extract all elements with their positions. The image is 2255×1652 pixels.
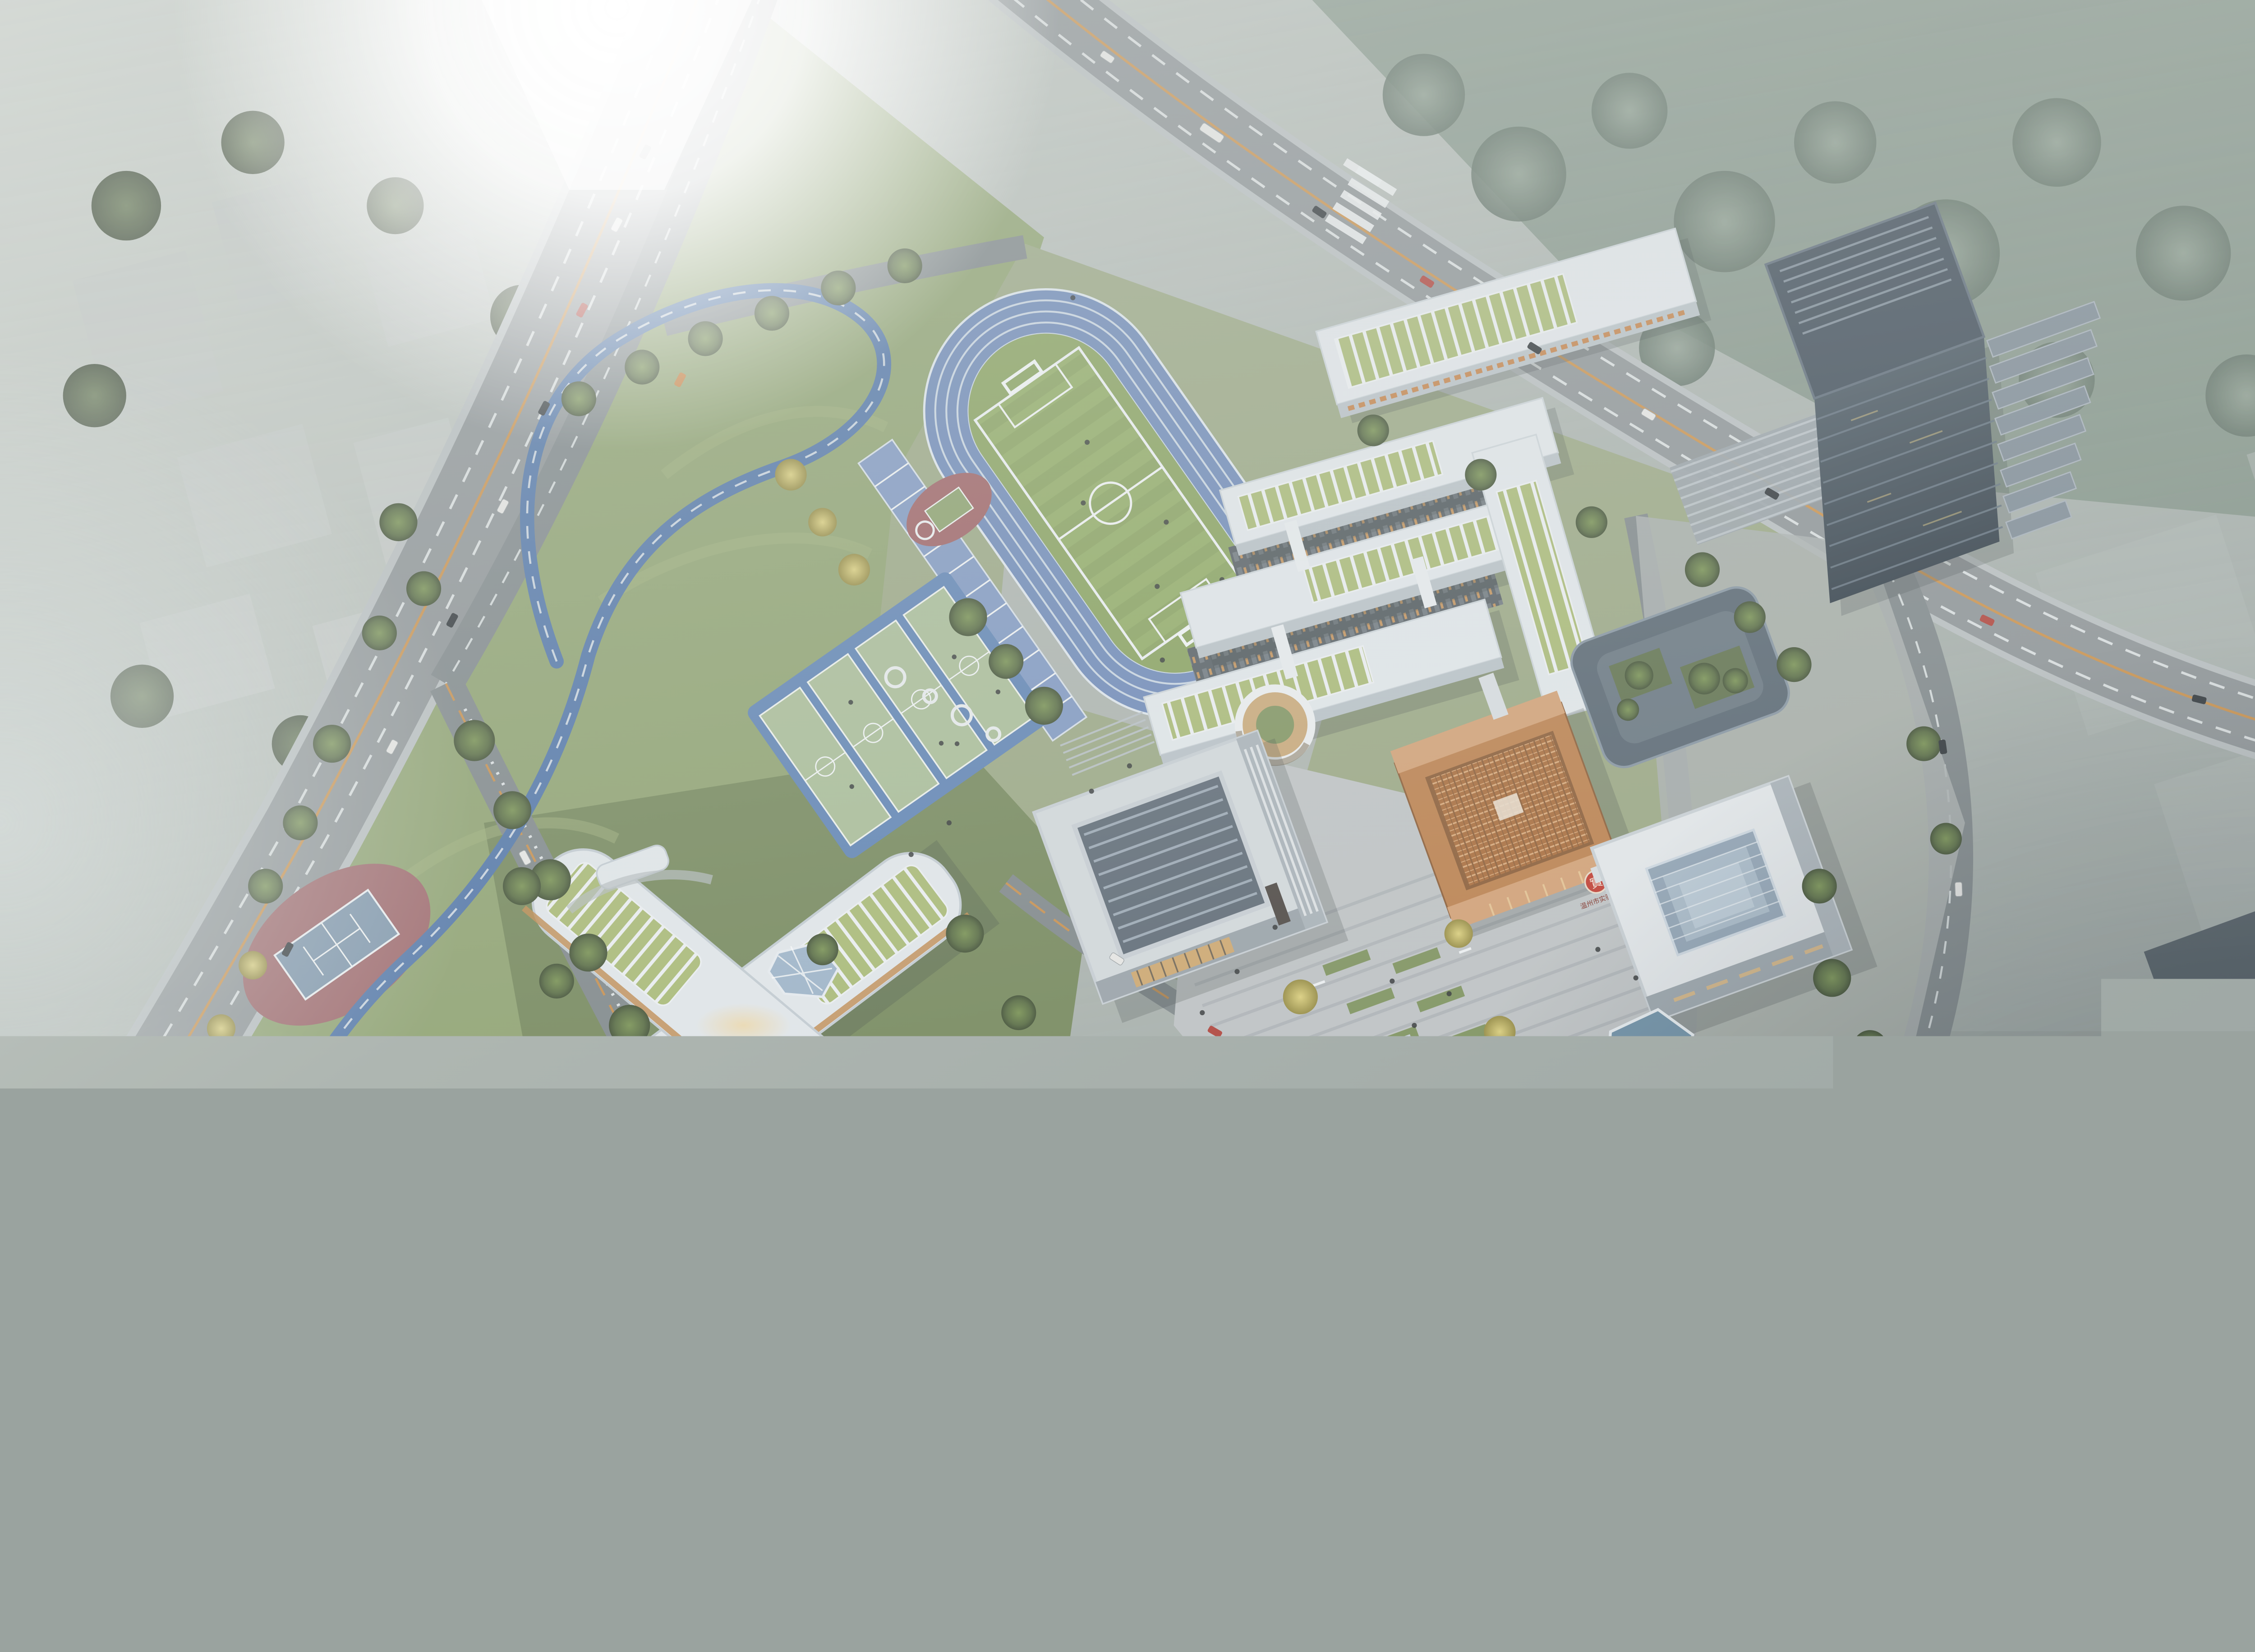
scene-canvas: 實 温州市实验中学 [0,0,2255,1652]
campus-aerial-rendering: 實 温州市实验中学 [0,0,2255,1652]
